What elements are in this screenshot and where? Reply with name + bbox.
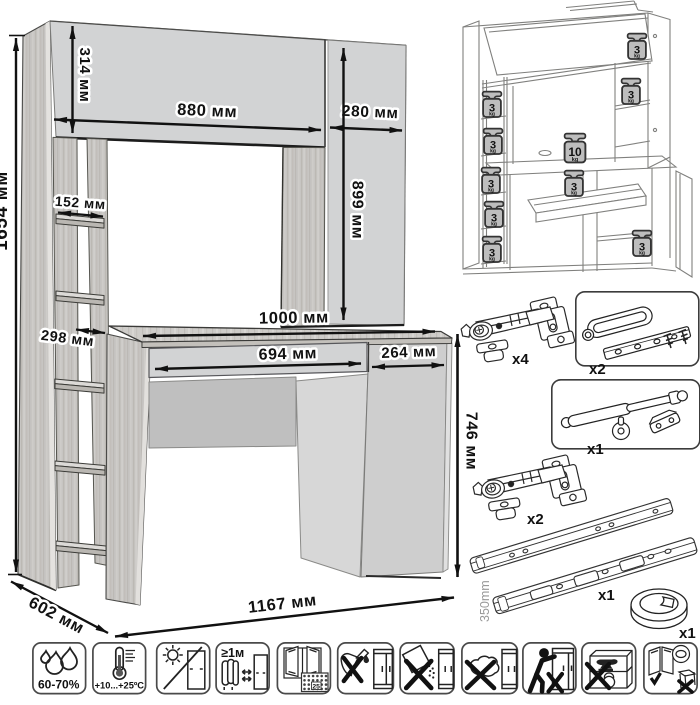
svg-text:60-70%: 60-70%: [38, 678, 80, 692]
svg-text:880 мм: 880 мм: [177, 101, 238, 122]
svg-text:899 мм: 899 мм: [349, 181, 366, 239]
svg-text:1000 мм: 1000 мм: [259, 308, 329, 327]
svg-text:x1: x1: [587, 441, 604, 458]
svg-text:x2: x2: [589, 361, 606, 378]
svg-text:x4: x4: [512, 351, 529, 368]
svg-text:314 мм: 314 мм: [76, 48, 93, 103]
svg-text:746 мм: 746 мм: [463, 412, 480, 470]
svg-text:280 мм: 280 мм: [342, 103, 399, 122]
svg-text:x1: x1: [679, 625, 696, 642]
svg-text:x2: x2: [527, 511, 544, 528]
svg-text:694 мм: 694 мм: [258, 345, 317, 364]
svg-text:1654 мм: 1654 мм: [0, 171, 12, 251]
svg-text:25: 25: [312, 683, 320, 690]
svg-text:264 мм: 264 мм: [381, 343, 437, 362]
svg-text:+10...+25ºС: +10...+25ºС: [95, 681, 145, 691]
svg-text:x1: x1: [598, 587, 615, 604]
svg-text:≥1м: ≥1м: [221, 646, 244, 660]
svg-text:350mm: 350mm: [478, 580, 492, 622]
